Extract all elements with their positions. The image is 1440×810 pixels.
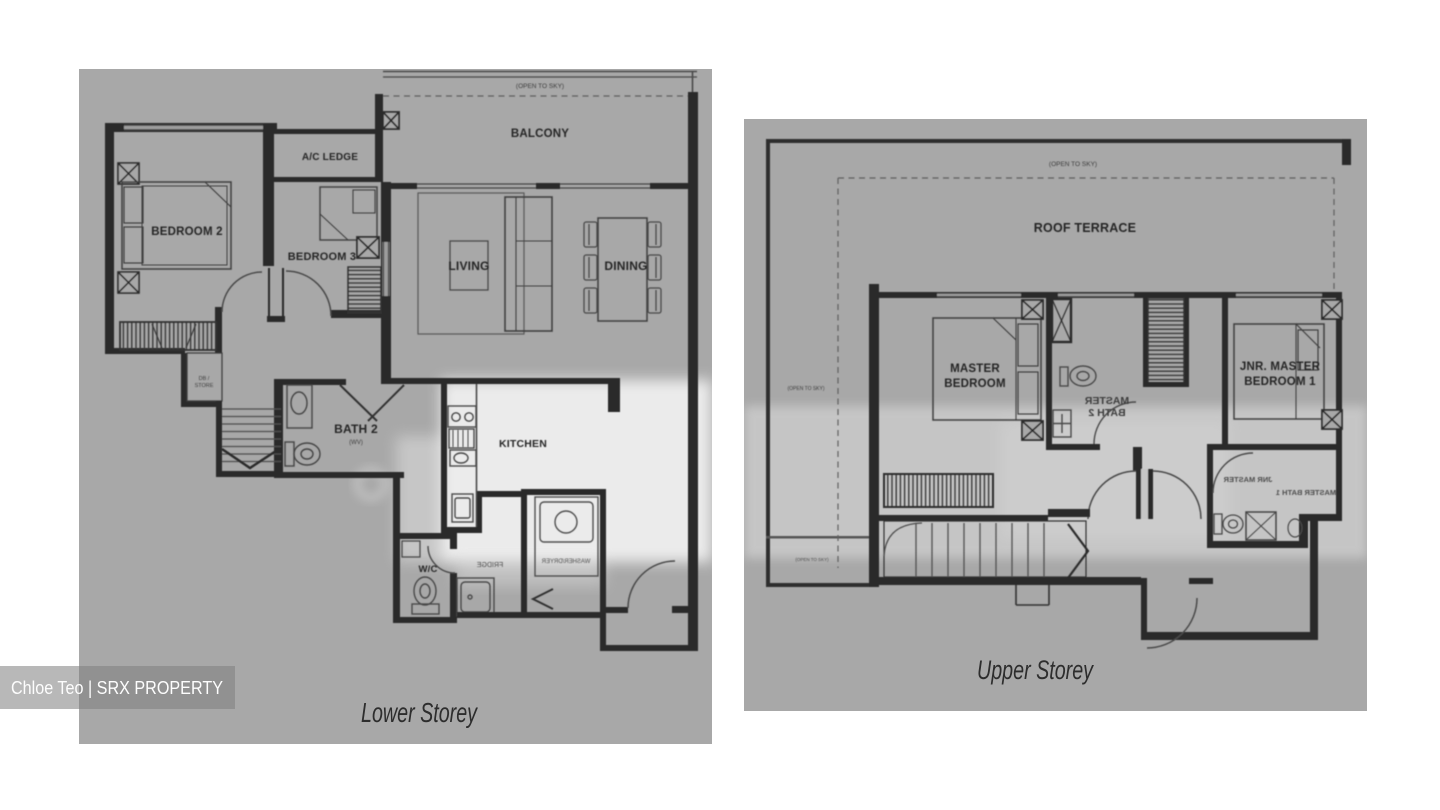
svg-text:BALCONY: BALCONY <box>511 128 569 140</box>
svg-text:ROOF TERRACE: ROOF TERRACE <box>1034 221 1136 235</box>
svg-text:FRIDGE: FRIDGE <box>476 562 503 569</box>
svg-text:BATH 2: BATH 2 <box>1088 407 1125 419</box>
svg-text:(OPEN TO SKY): (OPEN TO SKY) <box>1049 161 1097 168</box>
svg-text:Upper Storey: Upper Storey <box>977 655 1094 685</box>
svg-text:Chloe Teo | SRX PROPERTY: Chloe Teo | SRX PROPERTY <box>11 677 223 698</box>
svg-text:MASTER: MASTER <box>1084 395 1129 407</box>
svg-text:BEDROOM 3: BEDROOM 3 <box>288 251 356 263</box>
svg-text:STORE: STORE <box>195 383 214 389</box>
svg-text:Lower Storey: Lower Storey <box>361 697 478 728</box>
svg-text:KITCHEN: KITCHEN <box>499 438 547 450</box>
svg-text:(OPEN TO SKY): (OPEN TO SKY) <box>516 83 564 90</box>
svg-text:(WV): (WV) <box>349 440 363 446</box>
svg-text:BEDROOM 1: BEDROOM 1 <box>1244 376 1316 388</box>
svg-text:BEDROOM: BEDROOM <box>944 378 1005 390</box>
svg-text:MASTER: MASTER <box>950 363 1000 375</box>
svg-text:JNR MASTER: JNR MASTER <box>1223 475 1272 484</box>
svg-text:DINING: DINING <box>604 259 647 273</box>
svg-text:W/C: W/C <box>418 564 437 575</box>
svg-text:DB /: DB / <box>199 376 210 382</box>
svg-text:MASTER BATH 1: MASTER BATH 1 <box>1276 488 1336 497</box>
svg-text:WASHER/DRYER: WASHER/DRYER <box>541 559 590 565</box>
svg-text:LIVING: LIVING <box>448 259 489 273</box>
svg-text:(OPEN TO SKY): (OPEN TO SKY) <box>795 557 829 562</box>
svg-text:BEDROOM 2: BEDROOM 2 <box>151 226 222 238</box>
svg-text:(OPEN TO SKY): (OPEN TO SKY) <box>787 386 824 392</box>
svg-text:A/C LEDGE: A/C LEDGE <box>302 152 358 163</box>
svg-text:JNR. MASTER: JNR. MASTER <box>1240 361 1321 373</box>
svg-text:BATH 2: BATH 2 <box>334 422 378 436</box>
